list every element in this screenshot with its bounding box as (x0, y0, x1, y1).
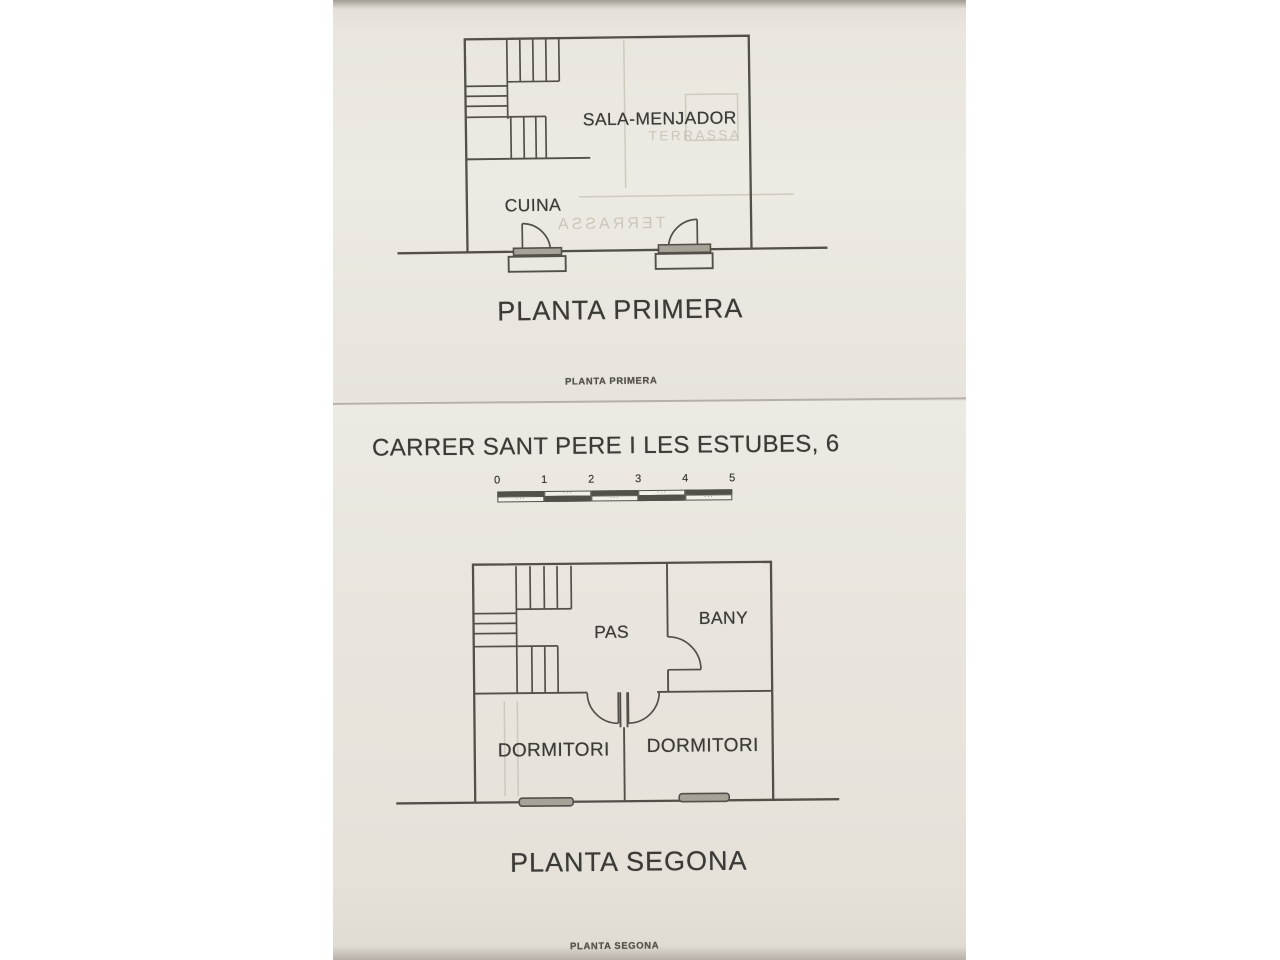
plan-caption-segona: PLANTA SEGONA (570, 940, 659, 952)
scale-label-3: 3 (635, 473, 641, 485)
scale-label-4: 4 (682, 473, 688, 485)
scale-label-5: 5 (729, 472, 735, 484)
plan-title-segona: PLANTA SEGONA (510, 846, 748, 879)
address-title: CARRER SANT PERE I LES ESTUBES, 6 (372, 430, 840, 462)
scale-segment (685, 494, 732, 500)
door-symbol-dormitori-right (628, 692, 659, 723)
floorplan-photo: TERRASSA TERRASSA SALA-MENJADOR CUINA PL… (333, 0, 966, 960)
scale-bar-bottom-row (497, 494, 732, 502)
scale-label-1: 1 (541, 474, 547, 486)
scale-label-0: 0 (494, 474, 500, 486)
scale-segment (544, 496, 591, 502)
room-label-bany: BANY (699, 608, 748, 629)
scale-segment (497, 496, 544, 502)
scale-segment (591, 495, 638, 501)
page2-content: CARRER SANT PERE I LES ESTUBES, 6 0 1 2 … (333, 0, 966, 960)
scale-bar: 0 1 2 3 4 5 (497, 489, 732, 503)
walls (394, 561, 839, 803)
room-label-pas: PAS (594, 622, 629, 643)
scale-segment (638, 495, 685, 501)
door-symbol-bany (668, 637, 701, 670)
plan-segona-drawing (389, 543, 852, 827)
scale-label-2: 2 (588, 474, 594, 486)
stairs-icon (473, 566, 572, 694)
door-symbol-dormitori-left (587, 692, 618, 723)
room-label-dormitori-left: DORMITORI (498, 739, 610, 762)
room-label-dormitori-right: DORMITORI (647, 735, 759, 758)
